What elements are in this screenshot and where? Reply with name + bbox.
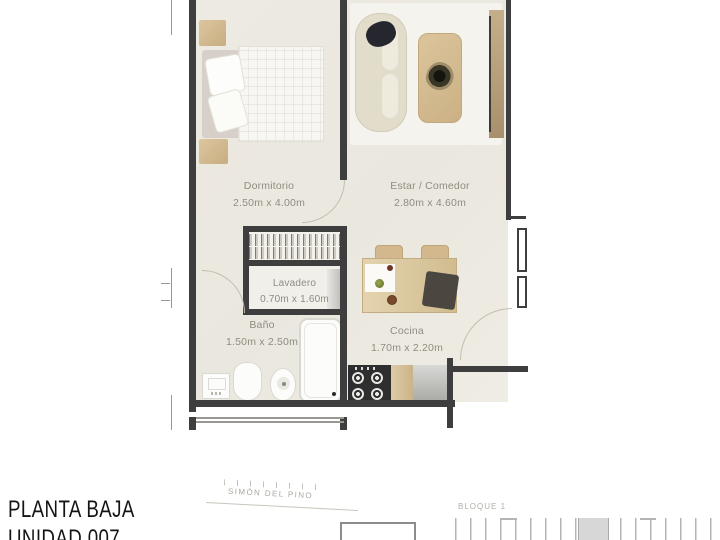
stove	[348, 365, 391, 404]
room-label-lavadero: Lavadero 0.70m x 1.60m	[249, 276, 340, 308]
floor-plan-page: Dormitorio 2.50m x 4.00m Estar / Comedor…	[0, 0, 720, 540]
burner	[352, 388, 364, 400]
toilet	[233, 362, 262, 401]
room-name: Estar / Comedor	[352, 178, 508, 195]
property-line	[171, 395, 172, 430]
burner	[371, 372, 383, 384]
window-frame	[517, 228, 527, 272]
dark-chair	[422, 271, 460, 310]
room-name: Cocina	[352, 323, 462, 340]
room-name: Lavadero	[249, 276, 340, 292]
closet-clothes	[249, 247, 341, 259]
room-dims: 1.70m x 2.20m	[352, 340, 462, 357]
room-dims: 2.80m x 4.60m	[352, 195, 508, 212]
food-plate	[387, 295, 397, 305]
strip-bar	[500, 518, 517, 520]
bed-duvet	[238, 46, 324, 142]
tv-screen	[489, 16, 491, 132]
burner	[352, 372, 364, 384]
kitchen-sink-counter	[413, 365, 447, 404]
sink-basin	[208, 378, 226, 390]
food-plate	[375, 279, 384, 288]
room-name: Dormitorio	[196, 178, 342, 195]
nightstand	[199, 139, 228, 164]
strip-bar	[640, 518, 656, 520]
tv-console	[489, 10, 504, 138]
kitchen-counter-wood	[391, 365, 413, 404]
room-name: Baño	[200, 317, 324, 334]
window-frame	[517, 276, 527, 308]
room-dims: 2.50m x 4.00m	[196, 195, 342, 212]
plan-title: PLANTA BAJA	[8, 497, 135, 523]
property-tick	[161, 283, 170, 284]
room-dims: 1.50m x 2.50m	[200, 334, 324, 351]
room-dims: 0.70m x 1.60m	[249, 292, 340, 308]
wall-closet-top	[243, 226, 347, 232]
property-line	[171, 268, 172, 308]
street-line	[206, 502, 358, 511]
stove-knobs	[355, 367, 377, 370]
room-label-bano: Baño 1.50m x 2.50m	[200, 317, 324, 351]
room-label-cocina: Cocina 1.70m x 2.20m	[352, 323, 462, 357]
unit-title: UNIDAD 007	[8, 526, 120, 540]
block-label: BLOQUE 1	[458, 502, 506, 511]
wall-divider-top	[340, 0, 347, 180]
site-building-outline	[340, 522, 416, 540]
bidet-drain	[282, 382, 286, 386]
wall-divider-mid	[340, 228, 347, 402]
food-plate	[387, 265, 393, 271]
sofa-cushion	[382, 74, 398, 118]
wall-closet-bottom	[243, 260, 347, 266]
wall-left	[189, 0, 196, 412]
closet-clothes	[249, 234, 341, 246]
room-label-estar-comedor: Estar / Comedor 2.80m x 4.60m	[352, 178, 508, 212]
dining-table	[362, 258, 457, 313]
sink-taps	[211, 392, 222, 395]
nightstand	[199, 20, 226, 46]
property-line	[171, 0, 172, 35]
bath-sink	[202, 373, 230, 399]
wall-bottom	[189, 400, 455, 407]
wall-left-stub	[189, 417, 196, 430]
plant	[422, 59, 458, 97]
terrace-line	[196, 421, 344, 423]
wall-stub-below	[340, 417, 347, 430]
terrace-line	[196, 417, 344, 419]
coffee-table	[418, 33, 462, 123]
sofa	[355, 13, 407, 132]
wall-right-sill	[511, 216, 526, 219]
room-label-dormitorio: Dormitorio 2.50m x 4.00m	[196, 178, 342, 212]
wall-laundry-bottom	[243, 309, 347, 315]
bidet	[270, 368, 296, 401]
wall-kitchen-south	[447, 366, 528, 372]
closet	[249, 232, 341, 261]
unit-highlight	[578, 518, 609, 540]
burner	[371, 388, 383, 400]
property-tick	[161, 300, 170, 301]
bathtub-drain	[332, 392, 336, 396]
